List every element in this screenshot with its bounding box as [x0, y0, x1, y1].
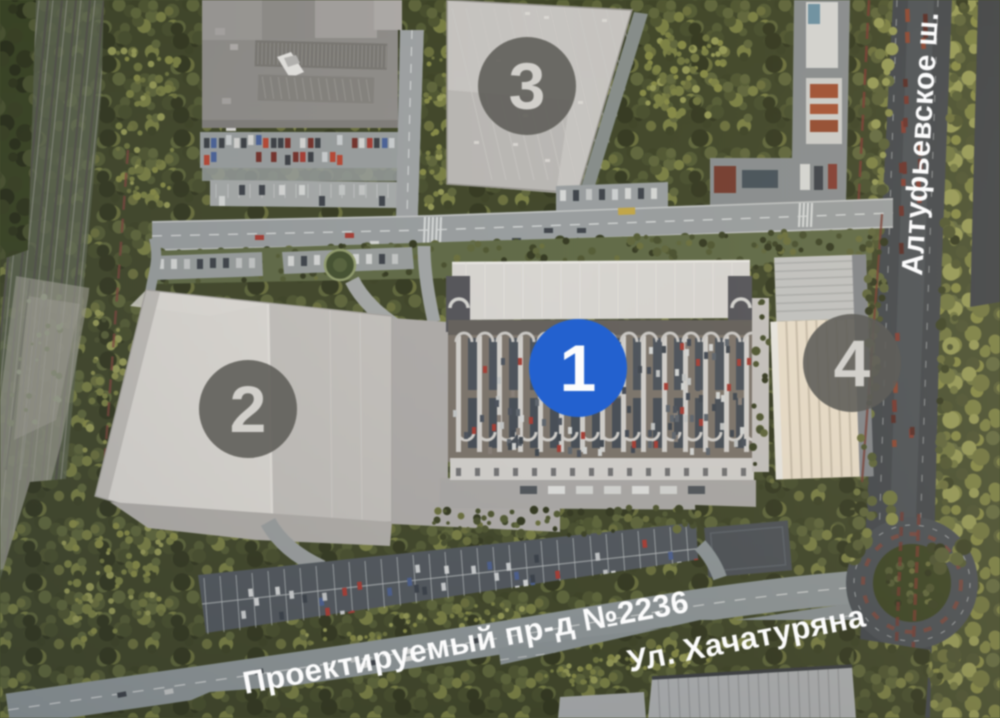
svg-text:4: 4 [834, 326, 871, 400]
svg-text:1: 1 [560, 331, 597, 405]
svg-text:3: 3 [509, 49, 546, 123]
svg-text:2: 2 [230, 372, 267, 446]
